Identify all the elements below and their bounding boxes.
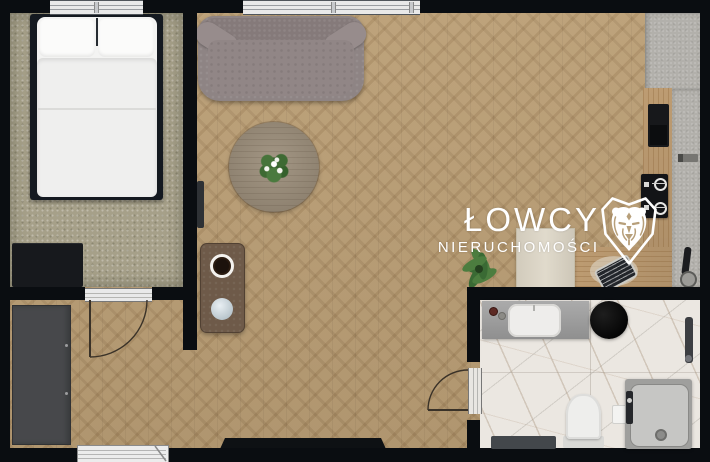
floor-plan-image: ŁOWCY NIERUCHOMOŚCI	[0, 0, 710, 462]
watermark-brand-name: ŁOWCY	[438, 203, 600, 236]
watermark-text-block: ŁOWCY NIERUCHOMOŚCI	[438, 203, 597, 255]
watermark-brand-subtitle: NIERUCHOMOŚCI	[438, 240, 600, 255]
lion-logo-icon	[599, 195, 659, 267]
bathroom-door-arc	[428, 370, 468, 410]
entrance-door-diagonal	[155, 446, 166, 461]
bedroom-door-arc	[90, 300, 147, 357]
